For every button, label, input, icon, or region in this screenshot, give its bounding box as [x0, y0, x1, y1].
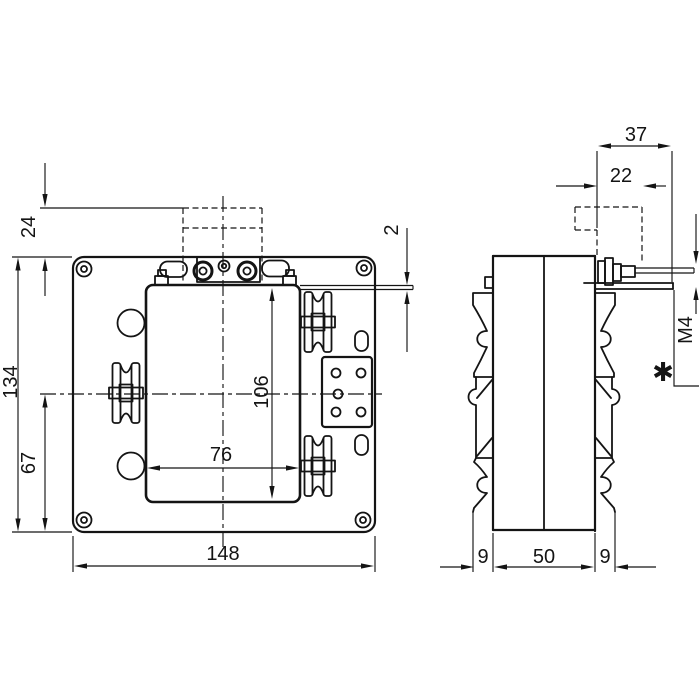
terminal-plate: [322, 357, 372, 427]
ribbed-flange-right: [595, 293, 620, 572]
dim-label-76: 76: [210, 444, 232, 466]
dimension-window-height: 106: [251, 288, 275, 499]
ribbed-flange-left: [469, 293, 494, 572]
front-view: 24 134 67 76 106: [0, 163, 413, 572]
secondary-terminals: [194, 261, 256, 281]
side-view: 37 22 M4 ✱ 9 5: [440, 124, 699, 572]
cable-clamp-right-top: [301, 292, 335, 352]
corner-screw-bottom-left: [77, 513, 92, 528]
dim-label-22: 22: [610, 165, 632, 187]
mounting-bracket: [584, 283, 673, 289]
corner-screw-top-right: [357, 261, 372, 276]
dimension-depths: 9 50 9: [440, 546, 656, 570]
mounting-hole-top: [118, 310, 145, 337]
side-body: [485, 256, 595, 531]
dim-label-m4: M4: [675, 316, 697, 344]
dimension-center-to-bottom: 67: [18, 395, 48, 532]
dimension-cover-projection: 22: [556, 165, 666, 189]
side-tab-left: [485, 277, 493, 288]
cable-clamp-left: [109, 363, 143, 423]
footnote-asterisk: ✱: [652, 358, 674, 388]
dim-label-148: 148: [206, 543, 239, 565]
dim-label-67: 67: [18, 452, 40, 474]
dim-label-24: 24: [18, 216, 40, 238]
technical-drawing-canvas: 24 134 67 76 106: [0, 0, 700, 700]
dim-label-134: 134: [0, 365, 22, 398]
dim-label-106: 106: [251, 375, 273, 408]
terminal-right: [238, 262, 256, 280]
dim-label-2: 2: [381, 224, 403, 235]
corner-screw-top-left: [77, 262, 92, 277]
dim-label-9-rear: 9: [599, 546, 610, 568]
vertical-slot-top: [355, 331, 368, 351]
dim-label-37: 37: [625, 124, 647, 146]
terminal-center: [219, 261, 230, 272]
cable-clamp-right-bottom: [301, 436, 335, 496]
dimension-drawing: 24 134 67 76 106: [0, 0, 700, 700]
dimension-terminal-thread: M4: [675, 214, 699, 344]
vertical-slot-bottom: [355, 435, 368, 455]
slot-right: [262, 261, 289, 277]
dimension-overall-width: 148: [73, 536, 375, 572]
terminal-screw: [598, 258, 694, 285]
dim-label-50: 50: [533, 546, 555, 568]
dim-label-9-front: 9: [477, 546, 488, 568]
mounting-hole-bottom: [118, 453, 145, 480]
dimension-window-width: 76: [147, 444, 299, 471]
busbar-strip: [300, 286, 413, 290]
corner-screw-bottom-right: [356, 513, 371, 528]
dimension-busbar-thickness: 2: [381, 224, 410, 352]
